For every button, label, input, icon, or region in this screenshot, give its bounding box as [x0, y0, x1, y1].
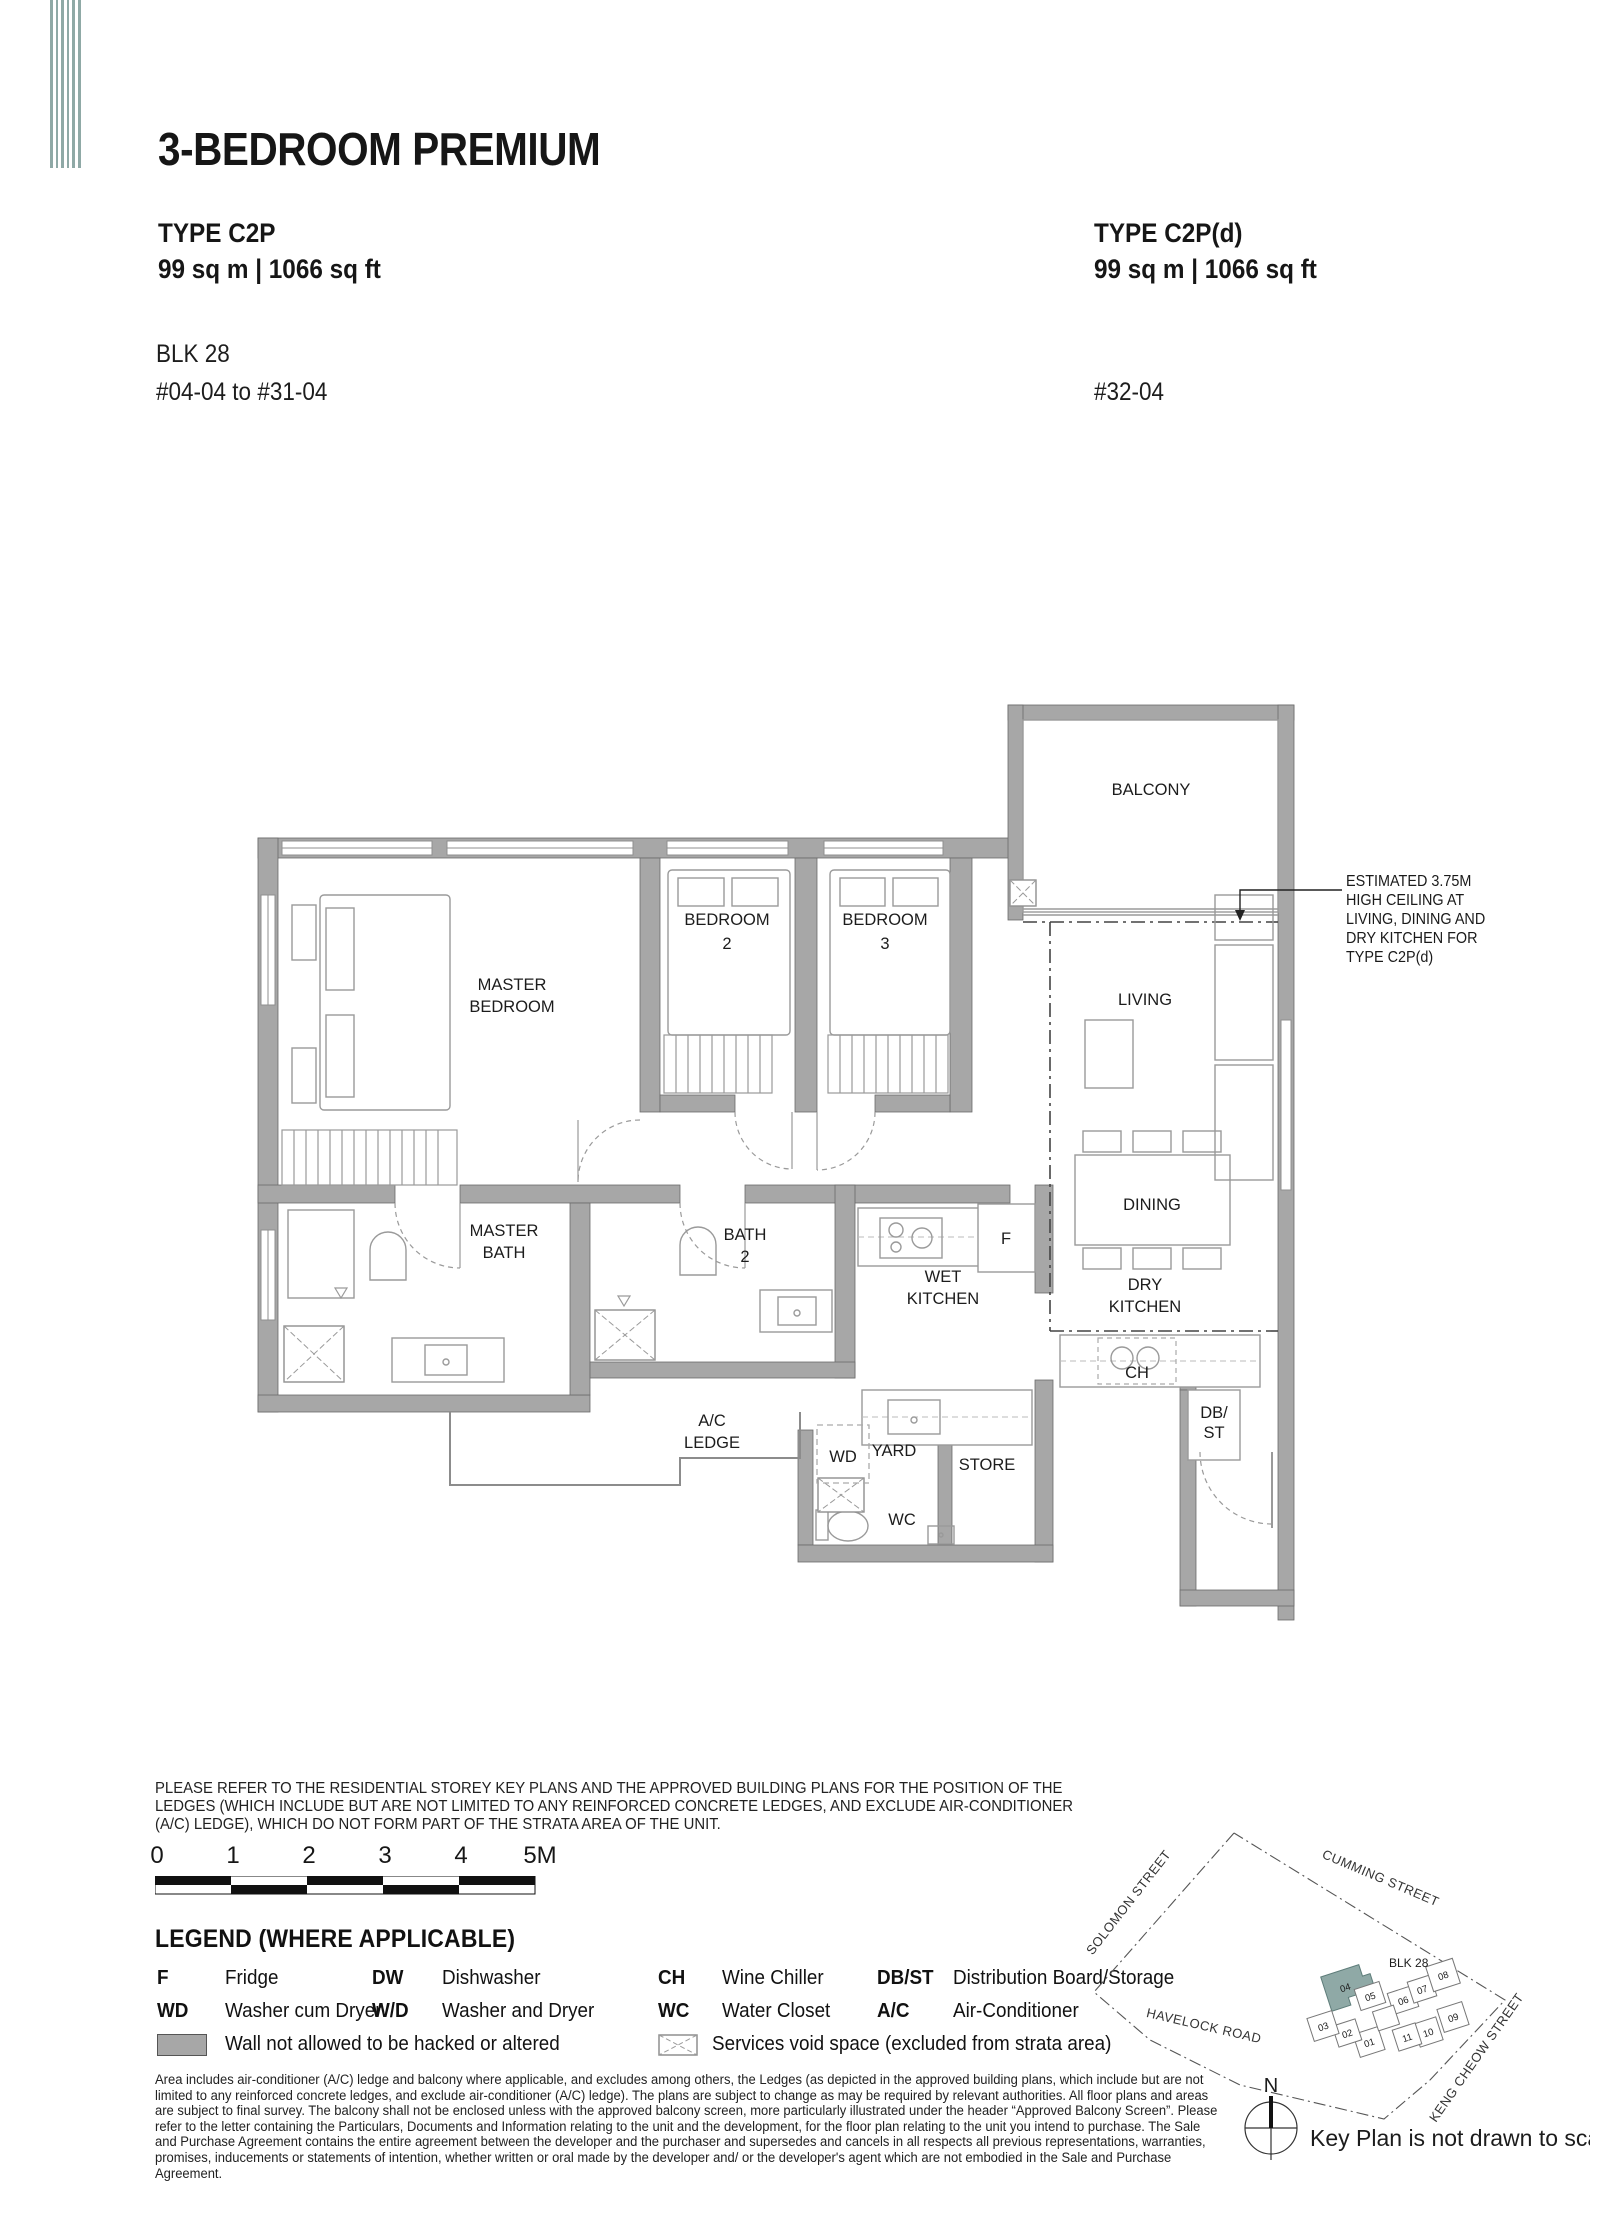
fine-print-line: refer to the letter containing the Parti… — [155, 2119, 1217, 2135]
dry-kitchen-label-2: KITCHEN — [1109, 1298, 1181, 1316]
ledge-disclaimer: PLEASE REFER TO THE RESIDENTIAL STOREY K… — [155, 1780, 1073, 1834]
annotation-line: LIVING, DINING AND — [1346, 910, 1485, 929]
key-plan: 04 05 06 07 08 09 10 11 01 02 03 SOLOMON… — [1060, 1770, 1590, 2200]
wine-chiller-label: CH — [1125, 1364, 1149, 1382]
floors-left: #04-04 to #31-04 — [156, 378, 327, 407]
master-bedroom-label-1: MASTER — [478, 976, 547, 994]
fine-print-line: are subject to final survey. The balcony… — [155, 2103, 1217, 2119]
legend-key: WC — [658, 1999, 689, 2023]
dry-kitchen-label-1: DRY — [1128, 1276, 1163, 1294]
yard-label: YARD — [872, 1442, 917, 1460]
yard-counter — [862, 1390, 1032, 1445]
legend-value: Wine Chiller — [722, 1966, 824, 1990]
ac-ledge-label-1: A/C — [698, 1412, 726, 1430]
unit-type-left: TYPE C2P — [158, 218, 275, 249]
unit-area-left: 99 sq m | 1066 sq ft — [158, 254, 381, 285]
store-label: STORE — [959, 1456, 1016, 1474]
ac-ledge-outline — [450, 1412, 800, 1485]
floors-right: #32-04 — [1094, 378, 1164, 407]
wc-fittings — [816, 1510, 954, 1544]
bedroom3-label-1: BEDROOM — [842, 911, 927, 929]
living-label: LIVING — [1118, 991, 1172, 1009]
legend-value: Dishwasher — [442, 1966, 541, 1990]
legend-value: Fridge — [225, 1966, 278, 1990]
legend-key: W/D — [372, 1999, 409, 2023]
scale-tick-label: 1 — [226, 1842, 239, 1870]
void-swatch — [658, 2034, 698, 2056]
dining-label: DINING — [1123, 1196, 1181, 1214]
fine-print-line: limited to any reinforced concrete ledge… — [155, 2088, 1217, 2104]
bath2-label-1: BATH — [724, 1226, 767, 1244]
disclaimer-line: PLEASE REFER TO THE RESIDENTIAL STOREY K… — [155, 1780, 1073, 1798]
ac-ledge-label-2: LEDGE — [684, 1434, 740, 1452]
cumming-street-label: CUMMING STREET — [1320, 1846, 1441, 1909]
dbst-label-2: ST — [1203, 1424, 1224, 1442]
bedroom2-label-1: BEDROOM — [684, 911, 769, 929]
wd-label: WD — [829, 1448, 857, 1466]
legend-value: Washer and Dryer — [442, 1999, 594, 2023]
master-bedroom-label-2: BEDROOM — [469, 998, 554, 1016]
fine-print-line: Agreement. — [155, 2166, 1217, 2182]
bedroom3-bed — [830, 870, 950, 1035]
wet-kitchen-label-1: WET — [925, 1268, 962, 1286]
annotation-line: HIGH CEILING AT — [1346, 891, 1485, 910]
legend-key: F — [157, 1966, 169, 1990]
scale-tick-label: 4 — [454, 1842, 467, 1870]
fridge-label: F — [1001, 1230, 1011, 1248]
dbst-label-1: DB/ — [1200, 1404, 1228, 1422]
key-plan-street-labels: SOLOMON STREET CUMMING STREET HAVELOCK R… — [1083, 1846, 1527, 2124]
legend-value: Water Closet — [722, 1999, 830, 2023]
master-bath-label-2: BATH — [483, 1244, 526, 1262]
scale-tick-label: 5M — [523, 1842, 556, 1870]
wc-label: WC — [888, 1511, 916, 1529]
unit-type-right: TYPE C2P(d) — [1094, 218, 1243, 249]
bedroom2-label-2: 2 — [722, 935, 731, 953]
fine-print: Area includes air-conditioner (A/C) ledg… — [155, 2072, 1217, 2181]
keyplan-blk-label: BLK 28 — [1389, 1956, 1429, 1970]
annotation-line: TYPE C2P(d) — [1346, 948, 1485, 967]
block-label: BLK 28 — [156, 340, 230, 369]
dry-kitchen-counter — [1060, 1335, 1260, 1387]
legend-key: DW — [372, 1966, 403, 1990]
scale-tick-label: 0 — [150, 1842, 163, 1870]
sofa — [1085, 895, 1273, 1180]
annotation-line: DRY KITCHEN FOR — [1346, 929, 1485, 948]
page-title: 3-BEDROOM PREMIUM — [158, 122, 600, 176]
legend-key: A/C — [877, 1999, 909, 2023]
annotation-line: ESTIMATED 3.75M — [1346, 872, 1485, 891]
fine-print-line: Area includes air-conditioner (A/C) ledg… — [155, 2072, 1217, 2088]
bath2-label-2: 2 — [740, 1248, 749, 1266]
legend-key: DB/ST — [877, 1966, 934, 1990]
disclaimer-line: (A/C) LEDGE), WHICH DO NOT FORM PART OF … — [155, 1816, 1073, 1834]
wet-kitchen-label-2: KITCHEN — [907, 1290, 979, 1308]
legend-heading: LEGEND (WHERE APPLICABLE) — [155, 1925, 515, 1954]
fine-print-line: and Purchase Agreement contains the enti… — [155, 2134, 1217, 2150]
master-bed — [292, 895, 450, 1110]
scale-tick-label: 3 — [378, 1842, 391, 1870]
wall-swatch — [157, 2034, 207, 2056]
scale-tick-label: 2 — [302, 1842, 315, 1870]
legend-void-note: Services void space (excluded from strat… — [712, 2032, 1111, 2056]
legend-key: CH — [658, 1966, 685, 1990]
legend-value: Washer cum Dryer — [225, 1999, 382, 2023]
disclaimer-line: LEDGES (WHICH INCLUDE BUT ARE NOT LIMITE… — [155, 1798, 1073, 1816]
unit-area-right: 99 sq m | 1066 sq ft — [1094, 254, 1317, 285]
legend-key: WD — [157, 1999, 188, 2023]
keyplan-note: Key Plan is not drawn to scale — [1310, 2125, 1590, 2151]
solomon-street-label: SOLOMON STREET — [1083, 1847, 1174, 1957]
high-ceiling-annotation: ESTIMATED 3.75M HIGH CEILING AT LIVING, … — [1346, 872, 1485, 967]
scale-bar-graphic — [155, 1876, 537, 1896]
fine-print-line: promises, inducements or statements of i… — [155, 2150, 1217, 2166]
balcony-label: BALCONY — [1112, 781, 1191, 799]
balcony-area — [1023, 720, 1278, 915]
havelock-road-label: HAVELOCK ROAD — [1145, 2005, 1263, 2046]
master-bath-label-1: MASTER — [470, 1222, 539, 1240]
bedroom3-label-2: 3 — [880, 935, 889, 953]
legend-wall-note: Wall not allowed to be hacked or altered — [225, 2032, 560, 2056]
floor-plan: BALCONY MASTER BEDROOM BEDROOM 2 BEDROOM… — [240, 690, 1400, 1640]
north-label: N — [1264, 2075, 1278, 2097]
